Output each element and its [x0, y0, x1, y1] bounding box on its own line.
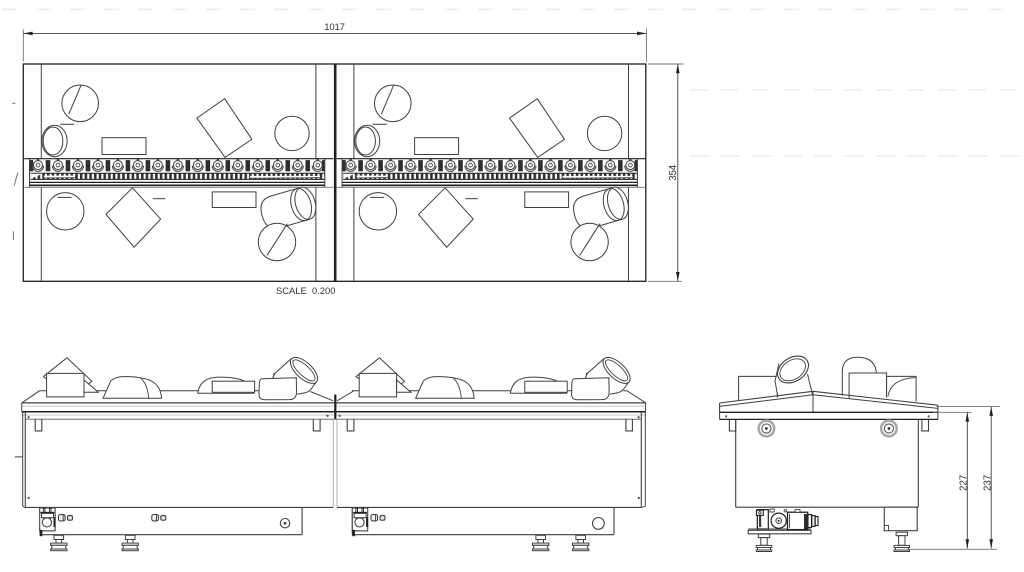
svg-text:SCALE 0.200: SCALE 0.200	[276, 285, 335, 296]
svg-text:227: 227	[959, 475, 970, 491]
svg-text:237: 237	[982, 475, 993, 491]
svg-text:1017: 1017	[324, 22, 345, 33]
svg-text:354: 354	[668, 164, 679, 180]
